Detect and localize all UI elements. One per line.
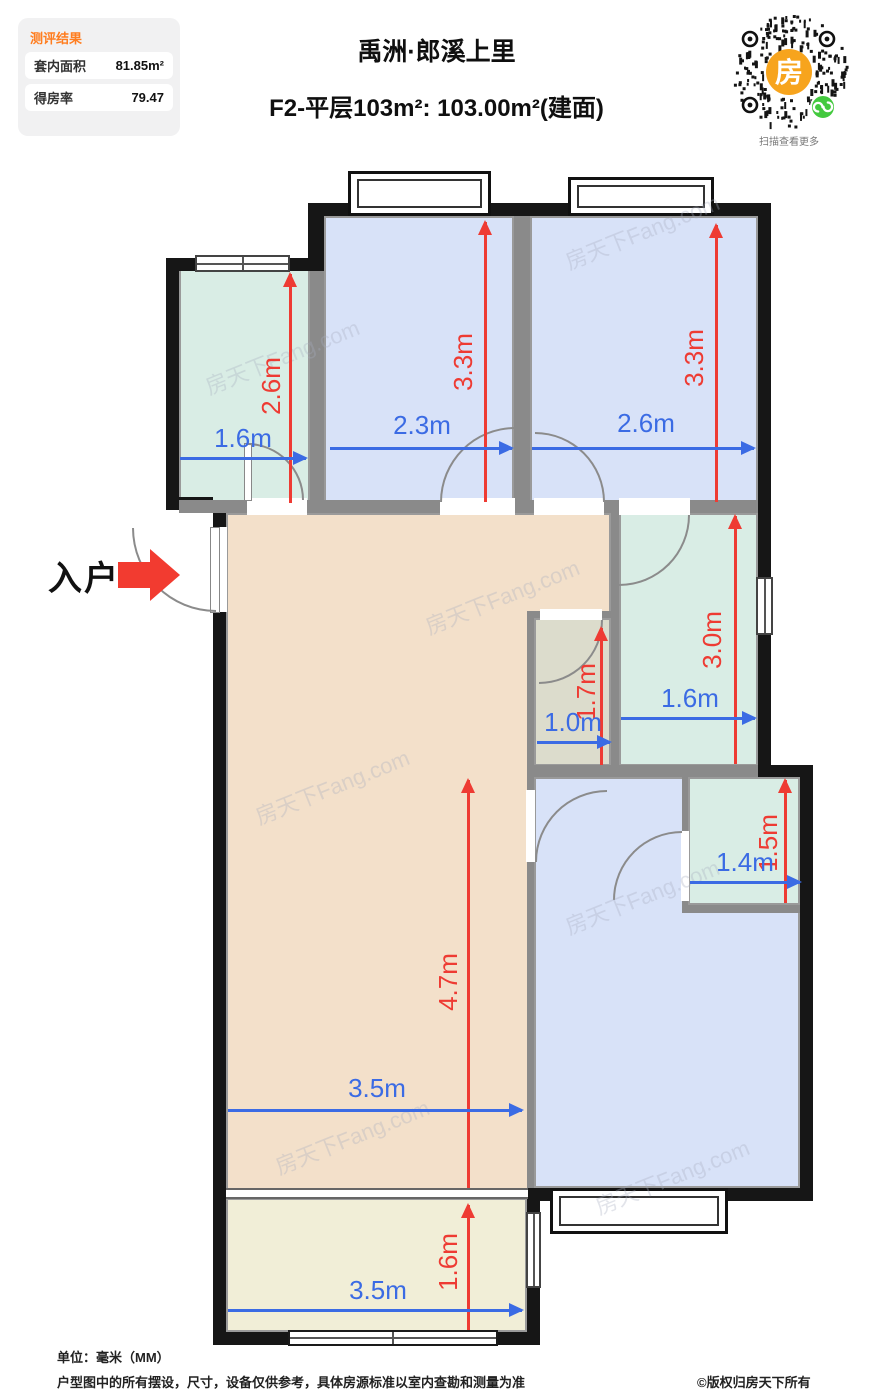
dim-arrow-bedroom2-h (532, 447, 754, 450)
dim-label: 1.4m (708, 847, 782, 877)
door-opening (540, 609, 602, 620)
dim-label: 2.6m (609, 408, 683, 438)
partition-wall (310, 271, 324, 503)
window (195, 255, 290, 272)
dim-arrow-kitchen-v (734, 516, 737, 764)
partition-wall (527, 611, 534, 777)
partition-wall (527, 765, 758, 777)
window (526, 1212, 541, 1288)
partition-wall (682, 905, 800, 913)
bay-window (568, 177, 714, 216)
entry-arrow-icon (118, 562, 150, 588)
entry-label: 入户 (48, 551, 120, 600)
partition-wall (514, 216, 530, 503)
bay-window (348, 171, 491, 216)
door-opening (247, 498, 307, 515)
dim-label: 3.5m (341, 1275, 415, 1305)
dim-label: 1.6m (206, 423, 280, 453)
entry-arrow-head-icon (150, 549, 180, 601)
wall (800, 765, 813, 1201)
dim-arrow-bath-h (537, 741, 610, 744)
floorplan-page: { "panel": { "title": "测评结果", "rows": [ … (0, 0, 873, 1400)
dim-arrow-balcony-h (228, 1309, 522, 1312)
dim-label: 3.5m (340, 1073, 414, 1103)
partition-wall (611, 513, 619, 777)
dim-arrow-kitchen-h (621, 717, 755, 720)
dim-label: 2.6m (256, 349, 286, 423)
dim-arrow-bedroom1-v (484, 222, 487, 502)
dim-label: 2.3m (385, 410, 459, 440)
window (756, 577, 773, 635)
wall (166, 258, 179, 510)
wall (758, 203, 771, 777)
door-opening (526, 790, 535, 862)
dim-arrow-storage-h (180, 457, 306, 460)
door-opening (681, 831, 689, 901)
floorplan: 房天下Fang.com 房天下Fang.com 房天下Fang.com 房天下F… (0, 0, 873, 1400)
dim-label: 4.7m (433, 945, 463, 1019)
window-sill (226, 1188, 528, 1199)
dim-label: 3.3m (679, 321, 709, 395)
dim-label: 1.6m (653, 683, 727, 713)
dim-arrow-bedroom1-h (330, 447, 512, 450)
dim-arrow-storage-v (289, 274, 292, 503)
dim-arrow-bedroom2-v (715, 225, 718, 502)
footer-disclaimer: 户型图中的所有摆设，尺寸，设备仅供参考，具体房源标准以室内查勘和测量为准 (57, 1372, 525, 1391)
footer-unit: 单位：毫米（MM） (57, 1347, 170, 1366)
dim-label: 1.0m (536, 707, 610, 737)
dim-label: 3.3m (448, 325, 478, 399)
window (288, 1330, 498, 1346)
dim-label: 3.0m (697, 603, 727, 677)
dim-arrow-living-h (228, 1109, 522, 1112)
bay-window (550, 1188, 728, 1234)
footer-copyright: ©版权归房天下所有 (697, 1372, 811, 1391)
door-opening (619, 498, 690, 515)
dim-arrow-toilet2-h (690, 881, 800, 884)
dim-label: 1.6m (433, 1225, 463, 1299)
wall (213, 612, 226, 1345)
dim-arrow-living-v (467, 780, 470, 1188)
